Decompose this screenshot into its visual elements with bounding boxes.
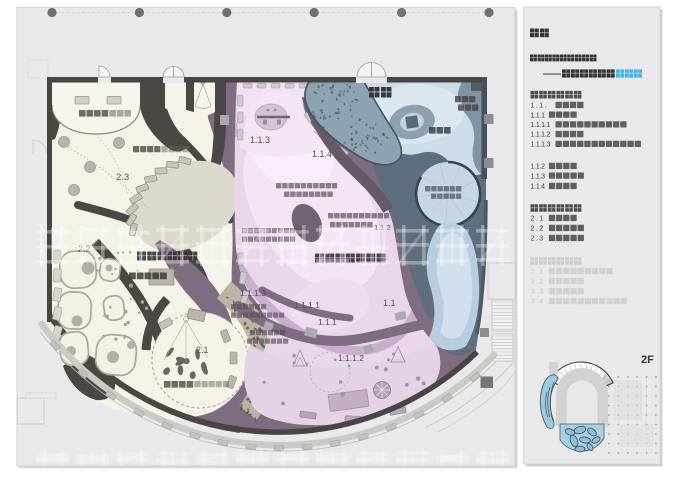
svg-text:1.1.2: 1.1.2 xyxy=(531,164,546,171)
svg-text:1.1.1.3: 1.1.1.3 xyxy=(240,288,266,298)
svg-text:2 . 3: 2 . 3 xyxy=(531,236,544,243)
svg-text:——: —— xyxy=(543,69,561,79)
svg-text:1.1.1.2: 1.1.1.2 xyxy=(338,353,364,363)
svg-text:1.1.1.1: 1.1.1.1 xyxy=(531,122,551,129)
svg-text:3 . 4: 3 . 4 xyxy=(531,299,544,306)
svg-text:1.1.4: 1.1.4 xyxy=(312,149,332,159)
svg-text:3 . 1: 3 . 1 xyxy=(531,269,544,276)
svg-text:2F: 2F xyxy=(641,354,654,366)
svg-text:1.1.1.2: 1.1.1.2 xyxy=(531,132,551,139)
svg-text:1.1.4: 1.1.4 xyxy=(531,184,546,191)
svg-text:2.3: 2.3 xyxy=(116,172,129,183)
svg-text:2.1: 2.1 xyxy=(196,345,209,355)
svg-text:3 . 3: 3 . 3 xyxy=(531,289,544,296)
svg-text:2 . 2: 2 . 2 xyxy=(531,226,544,233)
svg-text:1.1.1.3: 1.1.1.3 xyxy=(531,141,551,148)
svg-text:1.1.3: 1.1.3 xyxy=(250,135,270,145)
svg-text:1.1: 1.1 xyxy=(383,298,396,308)
svg-text:2 . 1: 2 . 1 xyxy=(531,216,544,223)
svg-text:1.1.1: 1.1.1 xyxy=(318,317,337,327)
svg-text:3 . 2: 3 . 2 xyxy=(531,279,544,286)
svg-text:1.1.3: 1.1.3 xyxy=(531,173,546,180)
svg-text:1 . 1 .: 1 . 1 . xyxy=(531,103,547,110)
svg-text:1.1.1.1: 1.1.1.1 xyxy=(294,300,320,310)
svg-text:1.1.1: 1.1.1 xyxy=(531,112,546,119)
